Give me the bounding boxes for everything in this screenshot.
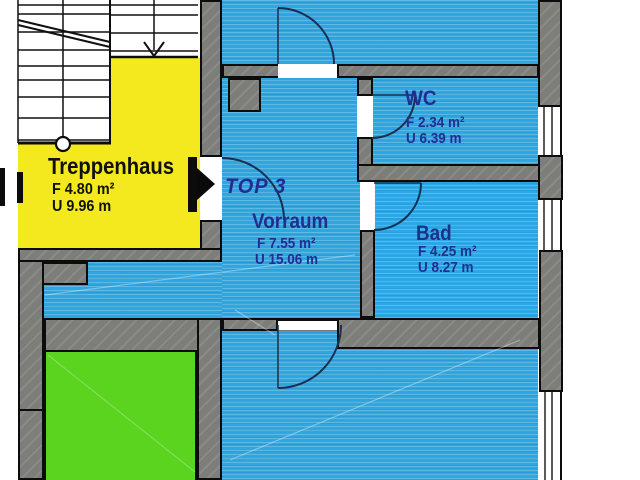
- door-arc-lower-room: [278, 325, 341, 388]
- unit-label-top3: TOP 3: [225, 176, 286, 197]
- stair-treads-left: [18, 0, 110, 143]
- room-area-wc: F 2.34 m²: [406, 115, 465, 130]
- door-arc-upper-room: [278, 8, 334, 64]
- texture-lines: [45, 255, 520, 472]
- room-perimeter-bad: U 8.27 m: [418, 260, 474, 275]
- plan-linework: [0, 0, 640, 480]
- room-perimeter-vorraum: U 15.06 m: [255, 252, 318, 267]
- room-area-vorraum: F 7.55 m²: [257, 236, 316, 251]
- room-area-bad: F 4.25 m²: [418, 244, 477, 259]
- room-label-bad: Bad: [416, 223, 452, 244]
- room-label-wc: WC: [405, 88, 437, 109]
- room-label-vorraum: Vorraum: [252, 211, 328, 232]
- stair-break-line: [18, 20, 110, 47]
- entrance-arrow-icon: [197, 168, 215, 200]
- door-arc-bad: [374, 183, 421, 230]
- room-label-treppenhaus: Treppenhaus: [48, 155, 174, 178]
- room-perimeter-treppenhaus: U 9.96 m: [52, 199, 111, 215]
- stair-walkline-circle-icon: [56, 137, 70, 151]
- room-perimeter-wc: U 6.39 m: [406, 131, 462, 146]
- floor-plan: Treppenhaus F 4.80 m² U 9.96 m TOP 3 Vor…: [0, 0, 640, 480]
- room-area-treppenhaus: F 4.80 m²: [52, 182, 114, 198]
